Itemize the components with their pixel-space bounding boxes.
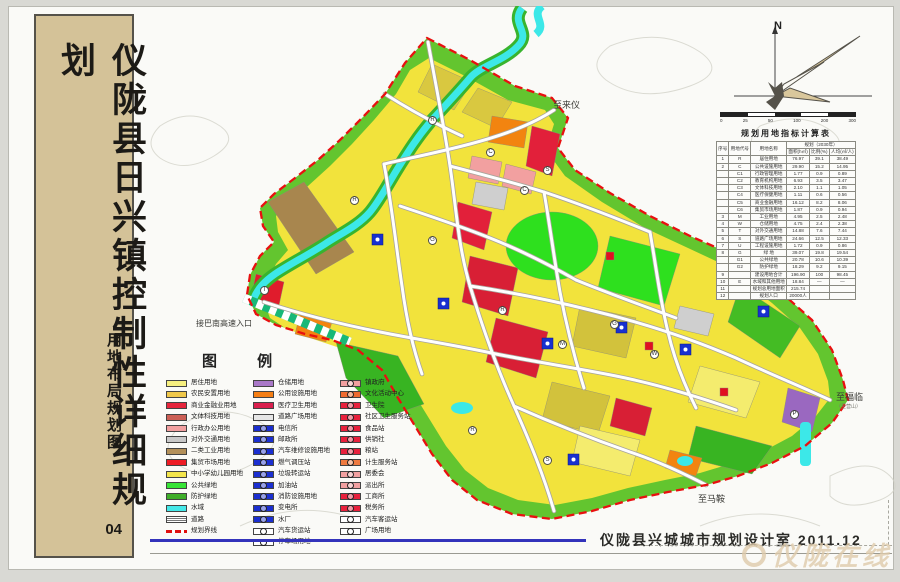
table-cell: G1 <box>729 257 751 264</box>
legend-item: 镇政府 <box>340 379 411 387</box>
table-cell <box>717 192 729 199</box>
table-row: G2防护绿地18.299.29.15 <box>717 264 856 271</box>
table-cell: 1.77 <box>787 170 810 177</box>
legend-label: 道路 <box>191 516 204 524</box>
table-row: C3文体科技用地2.101.11.05 <box>717 185 856 192</box>
table-cell: 1.05 <box>829 185 855 192</box>
legend-swatch-icon <box>340 505 361 512</box>
facility-symbol-icon <box>260 436 267 443</box>
table-cell: G <box>729 250 751 257</box>
table-row: 12规划人口20000人 <box>717 293 856 300</box>
scale-bar-segments <box>720 112 856 117</box>
table-cell: 0.56 <box>829 192 855 199</box>
legend-swatch-icon <box>253 493 274 500</box>
table-cell: 20000人 <box>787 293 810 300</box>
legend-item: 道路 <box>166 516 243 524</box>
legend-swatch-icon <box>253 380 274 387</box>
legend-swatch-icon <box>166 459 187 466</box>
table-row: 10E水域和其他用地18.84—— <box>717 278 856 285</box>
legend-swatch-icon <box>166 425 187 432</box>
table-cell: 0.89 <box>829 170 855 177</box>
table-cell: 2.38 <box>829 221 855 228</box>
legend-swatch-icon <box>166 530 187 533</box>
legend-label: 文化活动中心 <box>365 390 404 398</box>
table-row: 11规划总用地面积215.74 <box>717 286 856 293</box>
watermark-logo-icon <box>742 543 766 567</box>
legend-label: 食品站 <box>365 425 385 433</box>
table-cell: 18.84 <box>787 278 810 285</box>
legend-swatch-icon <box>340 528 361 535</box>
watermark: 仪陇在线 <box>742 536 892 573</box>
legend-item: 派出所 <box>340 482 411 490</box>
table-cell: 4.95 <box>787 214 810 221</box>
table-cell: 9 <box>717 271 729 278</box>
table-cell: 38.49 <box>829 156 855 163</box>
table-row: G1公共绿地20.7810.610.39 <box>717 257 856 264</box>
facility-symbol-icon <box>260 425 267 432</box>
table-header: 用地代号 <box>729 142 751 156</box>
legend-label: 公用设施用地 <box>278 390 317 398</box>
table-cell: 0.94 <box>829 206 855 213</box>
title-panel: 仪陇县日兴镇控制性详细规划 用地布局规划图 04 <box>34 14 134 558</box>
sheet-number: 04 <box>105 521 122 538</box>
legend-label: 对外交通用地 <box>191 436 230 444</box>
legend-swatch-icon <box>253 425 274 432</box>
legend-item: 二类工业用地 <box>166 447 243 455</box>
table-cell <box>717 178 729 185</box>
legend-label: 防护绿地 <box>191 493 217 501</box>
table-cell: 2 <box>717 163 729 170</box>
legend-label: 粮站 <box>365 447 378 455</box>
table-cell <box>717 206 729 213</box>
legend-swatch-icon <box>166 380 187 387</box>
table-row: C5商业金融用地16.128.28.06 <box>717 199 856 206</box>
legend-item: 变电所 <box>253 504 330 512</box>
landuse-table-block: 规划用地指标计算表 序号用地代号用地名称规划（2030年）面积(h㎡)比例(%)… <box>716 128 856 300</box>
legend-item: 中小学幼儿园用地 <box>166 470 243 478</box>
legend-item: 供销社 <box>340 436 411 444</box>
table-row: 8G绿 地39.0719.819.54 <box>717 250 856 257</box>
table-cell <box>729 286 751 293</box>
legend-label: 社区卫生服务站 <box>365 413 411 421</box>
facility-symbol-icon <box>347 459 354 466</box>
legend-label: 加油站 <box>278 482 298 490</box>
table-cell: 教育机构用地 <box>751 178 787 185</box>
table-cell <box>717 185 729 192</box>
table-cell: 建设用地合计 <box>751 271 787 278</box>
table-cell: 0.6 <box>809 192 829 199</box>
table-cell: 9.15 <box>829 264 855 271</box>
legend-swatch-icon <box>340 516 361 523</box>
legend-item: 广场用地 <box>340 527 411 535</box>
table-cell: 规划总用地面积 <box>751 286 787 293</box>
facility-symbol-icon <box>347 425 354 432</box>
table-cell: 6.93 <box>787 178 810 185</box>
scale-tick: 100 <box>793 118 801 123</box>
table-cell: 防护绿地 <box>751 264 787 271</box>
table-cell: 1 <box>717 156 729 163</box>
table-cell: 文体科技用地 <box>751 185 787 192</box>
legend-label: 供销社 <box>365 436 385 444</box>
legend-item: 加油站 <box>253 482 330 490</box>
table-cell: 10.6 <box>809 257 829 264</box>
table-cell <box>809 293 829 300</box>
legend-swatch-icon <box>340 448 361 455</box>
table-cell: 0.9 <box>809 242 829 249</box>
plan-title: 仪陇县日兴镇控制性详细规划 <box>50 42 152 522</box>
sheet-subtitle: 用地布局规划图 <box>103 332 124 512</box>
legend-item: 公共绿地 <box>166 482 243 490</box>
legend-label: 卫生院 <box>365 402 385 410</box>
legend-swatch-icon <box>340 402 361 409</box>
table-cell: 4.75 <box>787 221 810 228</box>
legend-swatch-icon <box>166 448 187 455</box>
legend-item: 商业金融业用地 <box>166 402 243 410</box>
scale-tick: 50 <box>768 118 773 123</box>
facility-symbol-icon <box>260 448 267 455</box>
facility-symbol-icon <box>347 391 354 398</box>
legend-label: 中小学幼儿园用地 <box>191 470 243 478</box>
table-cell: 4 <box>717 221 729 228</box>
legend-swatch-icon <box>340 471 361 478</box>
legend-swatch-icon <box>253 528 274 535</box>
legend-label: 汽车客运站 <box>365 516 398 524</box>
legend-swatch-icon <box>253 459 274 466</box>
legend-label: 燃气调压站 <box>278 459 311 467</box>
legend-item: 社区卫生服务站 <box>340 413 411 421</box>
legend-item: 水厂 <box>253 516 330 524</box>
legend-item: 燃气调压站 <box>253 459 330 467</box>
table-cell: 道路广场用地 <box>751 235 787 242</box>
table-cell: U <box>729 242 751 249</box>
table-cell: C1 <box>729 170 751 177</box>
table-cell: 18.29 <box>787 264 810 271</box>
table-cell: 19.8 <box>809 250 829 257</box>
facility-symbol-icon <box>347 448 354 455</box>
table-cell: 39.1 <box>809 156 829 163</box>
facility-symbol-icon <box>260 528 267 535</box>
legend-swatch-icon <box>166 482 187 489</box>
table-cell: 15.2 <box>809 163 829 170</box>
legend-item: 电信所 <box>253 425 330 433</box>
legend-item: 计生服务站 <box>340 459 411 467</box>
legend-label: 公共绿地 <box>191 482 217 490</box>
table-cell: 工程设施用地 <box>751 242 787 249</box>
facility-symbol-icon <box>260 471 267 478</box>
table-row: 5T对外交通用地14.887.67.44 <box>717 228 856 235</box>
facility-symbol-icon <box>347 414 354 421</box>
legend-item: 汽车维修设施用地 <box>253 447 330 455</box>
table-row: 3M工业用地4.952.52.48 <box>717 214 856 221</box>
legend-label: 规划界线 <box>191 527 217 535</box>
legend-label: 仓储用地 <box>278 379 304 387</box>
watermark-text: 仪陇在线 <box>772 536 892 573</box>
table-cell: 10 <box>717 278 729 285</box>
legend-item: 仓储用地 <box>253 379 330 387</box>
legend-swatch-icon <box>166 493 187 500</box>
table-cell <box>717 199 729 206</box>
facility-symbol-icon <box>260 482 267 489</box>
legend-swatch-icon <box>166 471 187 478</box>
table-cell <box>809 286 829 293</box>
table-row: C2教育机构用地6.933.53.47 <box>717 178 856 185</box>
table-cell: 水域和其他用地 <box>751 278 787 285</box>
table-cell: 3.5 <box>809 178 829 185</box>
table-cell: 0.9 <box>809 206 829 213</box>
table-cell: 20.78 <box>787 257 810 264</box>
table-cell: 8 <box>717 250 729 257</box>
legend-label: 广场用地 <box>365 527 391 535</box>
table-cell: 对外交通用地 <box>751 228 787 235</box>
table-cell: 3.47 <box>829 178 855 185</box>
table-subheader: 人均(㎡/人) <box>829 149 855 156</box>
legend-swatch-icon <box>166 516 187 523</box>
legend-label: 镇政府 <box>365 379 385 387</box>
legend-item: 汽车客运站 <box>340 516 411 524</box>
table-cell: 2.48 <box>829 214 855 221</box>
table-cell: 1.11 <box>787 192 810 199</box>
table-cell: 39.07 <box>787 250 810 257</box>
table-cell: 8.06 <box>829 199 855 206</box>
legend-item: 行政办公用地 <box>166 425 243 433</box>
table-cell: 3 <box>717 214 729 221</box>
table-row: C4医疗保健用地1.110.60.56 <box>717 192 856 199</box>
legend-swatch-icon <box>340 459 361 466</box>
table-cell: 196.90 <box>787 271 810 278</box>
title-underline <box>150 539 586 542</box>
table-cell: M <box>729 214 751 221</box>
legend-item: 粮站 <box>340 447 411 455</box>
legend-swatch-icon <box>340 493 361 500</box>
facility-symbol-icon <box>347 471 354 478</box>
table-cell: 7 <box>717 242 729 249</box>
legend-title: 图 例 <box>202 350 398 371</box>
legend-swatch-icon <box>340 436 361 443</box>
table-cell: 商业金融用地 <box>751 199 787 206</box>
table-cell: S <box>729 235 751 242</box>
legend-swatch-icon <box>166 391 187 398</box>
table-cell: 2.5 <box>809 214 829 221</box>
legend-label: 税务所 <box>365 504 385 512</box>
scale-tick: 200 <box>821 118 829 123</box>
legend-item: 水域 <box>166 504 243 512</box>
scale-tick: 25 <box>743 118 748 123</box>
legend-label: 计生服务站 <box>365 459 398 467</box>
table-cell: 1.1 <box>809 185 829 192</box>
table-cell: G2 <box>729 264 751 271</box>
table-cell: R <box>729 156 751 163</box>
table-header: 用地名称 <box>751 142 787 156</box>
table-cell: 76.97 <box>787 156 810 163</box>
legend-label: 邮政所 <box>278 436 298 444</box>
legend-swatch-icon <box>340 482 361 489</box>
table-cell: 14.95 <box>829 163 855 170</box>
legend-item: 医疗卫生用地 <box>253 402 330 410</box>
legend-item: 邮政所 <box>253 436 330 444</box>
table-cell: 工业用地 <box>751 214 787 221</box>
table-cell <box>729 293 751 300</box>
table-cell <box>717 170 729 177</box>
legend-swatch-icon <box>253 482 274 489</box>
legend-column: 镇政府文化活动中心卫生院社区卫生服务站食品站供销社粮站计生服务站居委会派出所工商… <box>340 379 411 546</box>
facility-symbol-icon <box>347 482 354 489</box>
legend-item: 公用设施用地 <box>253 390 330 398</box>
scale-tick: 0 <box>720 118 723 123</box>
facility-symbol-icon <box>260 516 267 523</box>
facility-symbol-icon <box>347 516 354 523</box>
legend-swatch-icon <box>166 402 187 409</box>
table-cell <box>829 286 855 293</box>
table-cell: 居住用地 <box>751 156 787 163</box>
table-row: 6S道路广场用地24.6612.512.33 <box>717 235 856 242</box>
legend-item: 卫生院 <box>340 402 411 410</box>
table-cell: 医疗保健用地 <box>751 192 787 199</box>
table-header: 规划（2030年） <box>787 142 856 149</box>
table-cell: 1.87 <box>787 206 810 213</box>
legend-item: 税务所 <box>340 504 411 512</box>
table-cell: 5 <box>717 228 729 235</box>
legend-item: 农民安置用地 <box>166 390 243 398</box>
table-cell: 10.39 <box>829 257 855 264</box>
legend-label: 二类工业用地 <box>191 447 230 455</box>
table-cell: 16.12 <box>787 199 810 206</box>
legend-item: 对外交通用地 <box>166 436 243 444</box>
facility-symbol-icon <box>260 459 267 466</box>
legend-item: 消防设施用地 <box>253 493 330 501</box>
legend-label: 农民安置用地 <box>191 390 230 398</box>
legend-label: 居委会 <box>365 470 385 478</box>
table-row: 7U工程设施用地1.720.90.86 <box>717 242 856 249</box>
legend-label: 派出所 <box>365 482 385 490</box>
legend-label: 商业金融业用地 <box>191 402 237 410</box>
table-cell: E <box>729 278 751 285</box>
legend-label: 水域 <box>191 504 204 512</box>
table-cell: C2 <box>729 178 751 185</box>
table-title: 规划用地指标计算表 <box>716 128 856 139</box>
facility-symbol-icon <box>260 505 267 512</box>
table-cell <box>729 271 751 278</box>
legend-label: 集贸市场用地 <box>191 459 230 467</box>
legend-swatch-icon <box>166 436 187 443</box>
legend-label: 水厂 <box>278 516 291 524</box>
table-cell: T <box>729 228 751 235</box>
facility-symbol-icon <box>260 493 267 500</box>
facility-symbol-icon <box>347 528 354 535</box>
table-row: 2C公共设施用地29.9015.214.95 <box>717 163 856 170</box>
table-cell <box>829 293 855 300</box>
table-cell: 29.90 <box>787 163 810 170</box>
table-row: 4W仓储用地4.752.42.38 <box>717 221 856 228</box>
facility-symbol-icon <box>347 402 354 409</box>
legend-item: 文化活动中心 <box>340 390 411 398</box>
table-cell <box>717 257 729 264</box>
table-cell: C6 <box>729 206 751 213</box>
table-cell: 规划人口 <box>751 293 787 300</box>
legend-swatch-icon <box>340 380 361 387</box>
legend-item: 居住用地 <box>166 379 243 387</box>
table-row: 1R居住用地76.9739.138.49 <box>717 156 856 163</box>
legend-label: 垃圾转运站 <box>278 470 311 478</box>
legend-swatch-icon <box>253 505 274 512</box>
legend-swatch-icon <box>253 414 274 421</box>
table-cell: 0.9 <box>809 170 829 177</box>
table-cell: C5 <box>729 199 751 206</box>
table-cell: 仓储用地 <box>751 221 787 228</box>
legend-columns: 居住用地农民安置用地商业金融业用地文体科技用地行政办公用地对外交通用地二类工业用… <box>166 379 398 546</box>
facility-symbol-icon <box>347 436 354 443</box>
scale-ticks: 02550100200300 <box>720 118 856 123</box>
legend-swatch-icon <box>253 471 274 478</box>
legend-item: 居委会 <box>340 470 411 478</box>
legend-swatch-icon <box>253 391 274 398</box>
legend-label: 汽车货运站 <box>278 527 311 535</box>
table-cell: 6 <box>717 235 729 242</box>
legend-item: 汽车货运站 <box>253 527 330 535</box>
scale-tick: 300 <box>848 118 856 123</box>
table-subheader: 比例(%) <box>809 149 829 156</box>
legend-label: 医疗卫生用地 <box>278 402 317 410</box>
table-cell: 2.4 <box>809 221 829 228</box>
table-cell: 公共绿地 <box>751 257 787 264</box>
table-cell: 14.88 <box>787 228 810 235</box>
legend-swatch-icon <box>166 414 187 421</box>
table-cell: C4 <box>729 192 751 199</box>
legend-swatch-icon <box>166 505 187 512</box>
table-cell: 215.74 <box>787 286 810 293</box>
legend-item: 规划界线 <box>166 527 243 535</box>
table-row: C6集贸市场用地1.870.90.94 <box>717 206 856 213</box>
table-cell: 行政管理用地 <box>751 170 787 177</box>
table-cell: W <box>729 221 751 228</box>
legend-column: 仓储用地公用设施用地医疗卫生用地道路广场用地电信所邮政所汽车维修设施用地燃气调压… <box>253 379 330 546</box>
table-cell: 12 <box>717 293 729 300</box>
table-cell: 7.6 <box>809 228 829 235</box>
legend-label: 变电所 <box>278 504 298 512</box>
legend-swatch-icon <box>340 425 361 432</box>
legend-swatch-icon <box>253 448 274 455</box>
scale-bar: 02550100200300 <box>720 112 856 122</box>
legend-swatch-icon <box>253 516 274 523</box>
facility-symbol-icon <box>347 505 354 512</box>
legend-label: 工商所 <box>365 493 385 501</box>
facility-symbol-icon <box>347 380 354 387</box>
table-header: 序号 <box>717 142 729 156</box>
legend-item: 防护绿地 <box>166 493 243 501</box>
legend-swatch-icon <box>253 436 274 443</box>
legend-item: 集贸市场用地 <box>166 459 243 467</box>
table-cell: 12.5 <box>809 235 829 242</box>
legend-label: 汽车维修设施用地 <box>278 447 330 455</box>
table-subheader: 面积(h㎡) <box>787 149 810 156</box>
legend-swatch-icon <box>253 402 274 409</box>
compass-rose <box>728 18 878 110</box>
legend-item: 道路广场用地 <box>253 413 330 421</box>
north-label: N <box>774 20 782 32</box>
table-cell: 98.45 <box>829 271 855 278</box>
legend-label: 居住用地 <box>191 379 217 387</box>
legend-label: 电信所 <box>278 425 298 433</box>
facility-symbol-icon <box>347 493 354 500</box>
table-cell: 19.54 <box>829 250 855 257</box>
table-cell: 24.66 <box>787 235 810 242</box>
table-cell: — <box>809 278 829 285</box>
landuse-table: 序号用地代号用地名称规划（2030年）面积(h㎡)比例(%)人均(㎡/人)1R居… <box>716 141 856 300</box>
table-cell <box>717 264 729 271</box>
table-cell: 9.2 <box>809 264 829 271</box>
legend-item: 食品站 <box>340 425 411 433</box>
legend-label: 消防设施用地 <box>278 493 317 501</box>
table-cell: 1.72 <box>787 242 810 249</box>
